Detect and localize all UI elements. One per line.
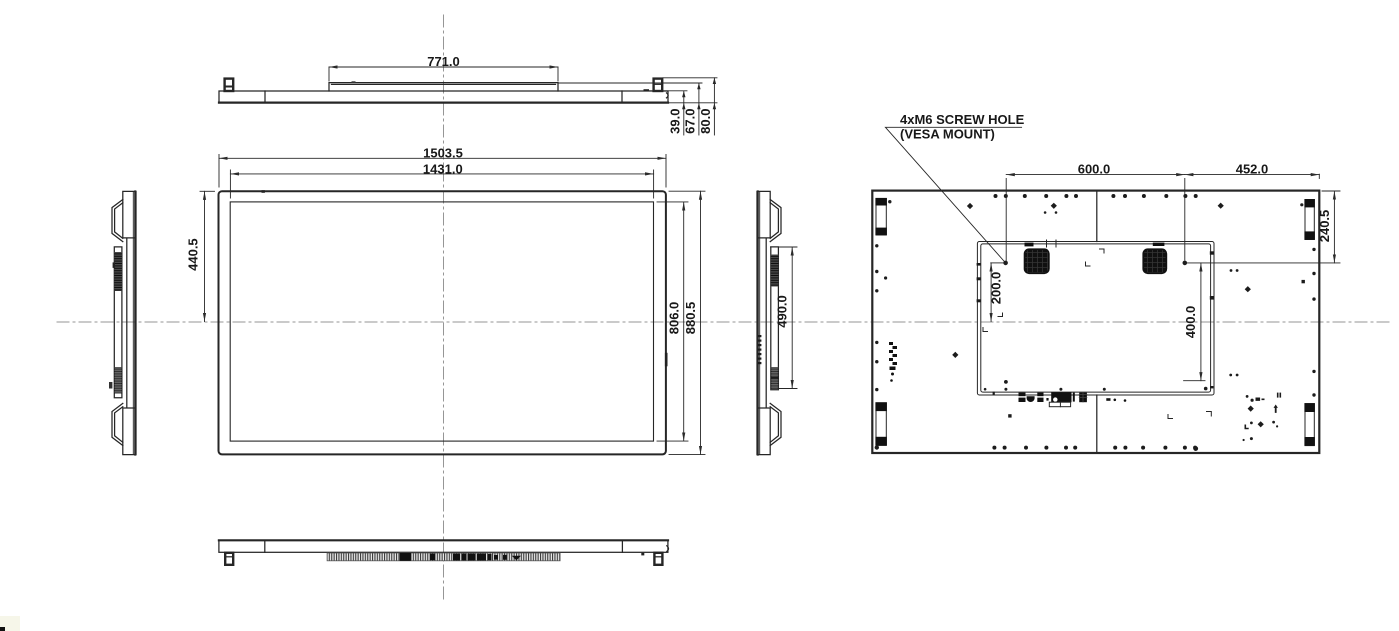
svg-text:400.0: 400.0 (1183, 306, 1198, 339)
svg-text:39.0: 39.0 (667, 109, 682, 134)
svg-text:440.5: 440.5 (185, 238, 200, 271)
svg-text:(VESA MOUNT): (VESA MOUNT) (900, 127, 995, 142)
svg-text:80.0: 80.0 (698, 109, 713, 134)
svg-text:880.5: 880.5 (683, 302, 698, 335)
svg-text:600.0: 600.0 (1078, 162, 1111, 177)
svg-text:67.0: 67.0 (683, 109, 698, 134)
svg-text:240.5: 240.5 (1317, 210, 1332, 243)
svg-text:1431.0: 1431.0 (423, 161, 463, 176)
svg-text:452.0: 452.0 (1236, 162, 1269, 177)
svg-text:771.0: 771.0 (427, 54, 460, 69)
svg-text:4xM6 SCREW HOLE: 4xM6 SCREW HOLE (900, 112, 1025, 127)
svg-text:490.0: 490.0 (775, 295, 790, 328)
svg-text:1503.5: 1503.5 (423, 146, 463, 161)
svg-text:200.0: 200.0 (988, 272, 1003, 305)
svg-text:806.0: 806.0 (667, 302, 682, 335)
